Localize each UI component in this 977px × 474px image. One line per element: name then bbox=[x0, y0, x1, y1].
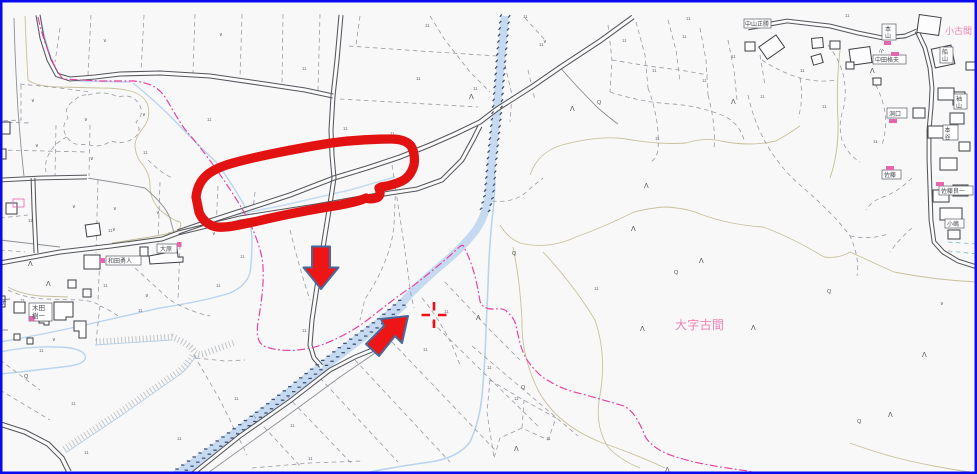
svg-text:11: 11 bbox=[523, 14, 528, 19]
svg-text:11: 11 bbox=[845, 13, 850, 18]
svg-text:Λ: Λ bbox=[476, 315, 481, 322]
svg-text:11: 11 bbox=[473, 86, 478, 91]
svg-text:11: 11 bbox=[84, 450, 89, 455]
svg-text:11: 11 bbox=[760, 94, 765, 99]
svg-text:本: 本 bbox=[945, 126, 951, 134]
svg-text:小嶋: 小嶋 bbox=[947, 220, 959, 228]
svg-text:大字古間: 大字古間 bbox=[675, 317, 724, 332]
svg-text:山: 山 bbox=[885, 32, 891, 40]
svg-text:11: 11 bbox=[594, 286, 599, 291]
svg-text:11: 11 bbox=[216, 283, 221, 288]
svg-text:11: 11 bbox=[652, 68, 657, 73]
svg-text:11: 11 bbox=[423, 347, 428, 352]
svg-text:11: 11 bbox=[108, 228, 113, 233]
svg-text:大原: 大原 bbox=[160, 245, 172, 253]
svg-text:Q: Q bbox=[521, 385, 526, 391]
svg-text:Λ: Λ bbox=[514, 446, 519, 453]
svg-text:山: 山 bbox=[956, 102, 962, 110]
svg-text:11: 11 bbox=[539, 42, 544, 47]
svg-text:11: 11 bbox=[290, 423, 295, 428]
svg-text:Λ: Λ bbox=[631, 226, 636, 233]
svg-text:11: 11 bbox=[702, 78, 707, 83]
svg-text:Λ: Λ bbox=[640, 326, 645, 333]
svg-text:11: 11 bbox=[103, 283, 108, 288]
svg-text:11: 11 bbox=[416, 76, 421, 81]
svg-text:谷: 谷 bbox=[945, 133, 951, 141]
svg-text:11: 11 bbox=[822, 104, 827, 109]
svg-text:樹一: 樹一 bbox=[32, 311, 46, 320]
svg-text:山: 山 bbox=[942, 55, 948, 63]
svg-text:∨: ∨ bbox=[219, 32, 223, 38]
svg-text:船: 船 bbox=[942, 48, 948, 56]
svg-text:11: 11 bbox=[234, 396, 239, 401]
svg-text:11: 11 bbox=[622, 38, 627, 43]
svg-text:11: 11 bbox=[873, 139, 878, 144]
svg-text:∨: ∨ bbox=[90, 156, 94, 162]
svg-text:Λ: Λ bbox=[699, 258, 704, 265]
svg-text:Λ: Λ bbox=[888, 412, 893, 419]
svg-text:Q: Q bbox=[674, 270, 679, 276]
svg-text:Λ: Λ bbox=[870, 68, 875, 75]
svg-text:11: 11 bbox=[240, 254, 245, 259]
svg-text:小古間: 小古間 bbox=[945, 25, 972, 36]
svg-text:木田: 木田 bbox=[32, 303, 45, 312]
svg-text:∨: ∨ bbox=[72, 204, 76, 210]
svg-text:中山正勝: 中山正勝 bbox=[745, 20, 769, 28]
svg-text:11: 11 bbox=[308, 456, 313, 461]
svg-text:∨: ∨ bbox=[145, 293, 149, 299]
svg-text:∨: ∨ bbox=[31, 98, 35, 104]
svg-text:Λ: Λ bbox=[469, 94, 474, 101]
svg-text:11: 11 bbox=[655, 136, 660, 141]
svg-text:11: 11 bbox=[207, 117, 212, 122]
svg-text:Λ: Λ bbox=[644, 183, 649, 190]
svg-text:本: 本 bbox=[885, 25, 891, 33]
svg-text:∨: ∨ bbox=[35, 143, 39, 149]
svg-text:Λ: Λ bbox=[570, 106, 575, 113]
svg-text:中田格夫: 中田格夫 bbox=[875, 56, 899, 64]
svg-text:∨: ∨ bbox=[84, 117, 88, 123]
svg-text:Λ: Λ bbox=[922, 352, 927, 359]
svg-text:11: 11 bbox=[302, 328, 307, 333]
svg-text:11: 11 bbox=[800, 68, 805, 73]
svg-text:11: 11 bbox=[20, 298, 25, 303]
svg-text:11: 11 bbox=[514, 396, 519, 401]
svg-text:11: 11 bbox=[425, 23, 430, 28]
svg-text:和田勇人: 和田勇人 bbox=[108, 257, 132, 265]
svg-text:11: 11 bbox=[686, 16, 691, 21]
svg-text:11: 11 bbox=[39, 348, 44, 353]
svg-text:Λ: Λ bbox=[46, 281, 51, 288]
svg-text:∨: ∨ bbox=[212, 231, 216, 237]
svg-text:11: 11 bbox=[177, 436, 182, 441]
svg-text:11: 11 bbox=[138, 308, 143, 313]
svg-text:11: 11 bbox=[731, 54, 736, 59]
svg-text:Λ: Λ bbox=[751, 325, 756, 332]
svg-text:11: 11 bbox=[71, 401, 76, 406]
svg-text:11: 11 bbox=[444, 309, 449, 314]
svg-text:袖: 袖 bbox=[956, 95, 962, 103]
svg-text:11: 11 bbox=[487, 365, 492, 370]
svg-text:∨: ∨ bbox=[52, 337, 56, 343]
svg-text:∨: ∨ bbox=[142, 112, 146, 118]
svg-text:Q: Q bbox=[857, 419, 862, 425]
svg-text:11: 11 bbox=[143, 150, 148, 155]
svg-text:∨: ∨ bbox=[113, 206, 117, 212]
svg-text:佐藤良一: 佐藤良一 bbox=[941, 187, 965, 195]
svg-text:洞口: 洞口 bbox=[889, 110, 901, 118]
svg-text:11: 11 bbox=[546, 436, 551, 441]
svg-text:11: 11 bbox=[302, 66, 307, 71]
svg-text:Λ: Λ bbox=[28, 261, 33, 268]
svg-text:Q: Q bbox=[512, 251, 517, 257]
svg-text:∨: ∨ bbox=[103, 38, 107, 44]
svg-text:Q: Q bbox=[597, 100, 602, 106]
svg-text:佐藤: 佐藤 bbox=[884, 171, 896, 179]
svg-text:11: 11 bbox=[682, 34, 687, 39]
svg-text:∨: ∨ bbox=[156, 210, 160, 216]
svg-text:∨: ∨ bbox=[940, 301, 944, 307]
svg-text:Q: Q bbox=[827, 289, 832, 295]
svg-text:11: 11 bbox=[343, 126, 348, 131]
svg-text:Λ: Λ bbox=[731, 99, 736, 106]
svg-text:11: 11 bbox=[28, 218, 33, 223]
svg-text:Q: Q bbox=[24, 374, 29, 380]
